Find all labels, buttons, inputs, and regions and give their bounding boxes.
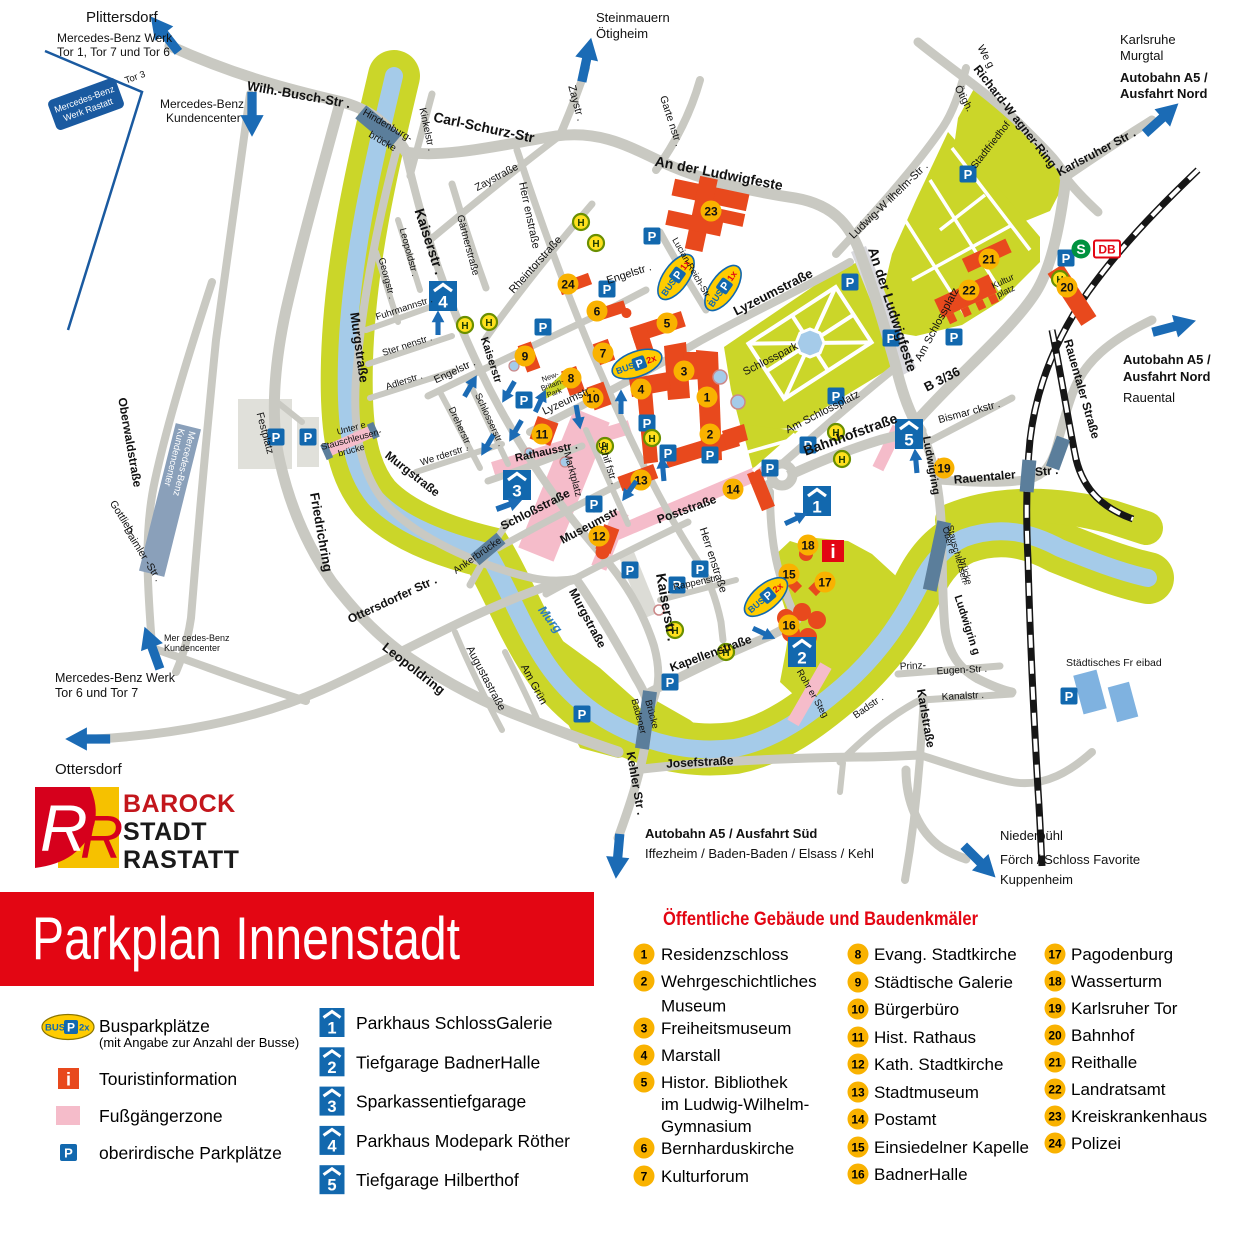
svg-text:Karlsruhe: Karlsruhe	[1120, 32, 1176, 47]
svg-text:Plittersdorf: Plittersdorf	[86, 9, 159, 26]
svg-text:1: 1	[812, 498, 821, 517]
svg-text:9: 9	[522, 350, 529, 364]
svg-text:Kath. Stadtkirche: Kath. Stadtkirche	[874, 1055, 1003, 1074]
svg-text:1: 1	[641, 948, 648, 962]
svg-text:3: 3	[327, 1098, 336, 1116]
svg-text:4: 4	[327, 1137, 337, 1155]
svg-text:Autobahn A5 /: Autobahn A5 /	[1120, 70, 1208, 85]
svg-text:Parkhaus Modepark Röther: Parkhaus Modepark Röther	[356, 1131, 570, 1151]
svg-text:Mer cedes-Benz: Mer cedes-Benz	[164, 633, 230, 643]
svg-text:BadnerHalle: BadnerHalle	[874, 1165, 968, 1184]
svg-text:1: 1	[704, 391, 711, 405]
svg-text:Hist. Rathaus: Hist. Rathaus	[874, 1028, 976, 1047]
svg-text:17: 17	[818, 576, 832, 590]
svg-text:im Ludwig-Wilhelm-: im Ludwig-Wilhelm-	[661, 1095, 809, 1114]
svg-text:Förch / Schloss Favorite: Förch / Schloss Favorite	[1000, 852, 1140, 867]
svg-text:P: P	[1065, 689, 1074, 704]
svg-text:13: 13	[634, 474, 648, 488]
svg-text:Tiefgarage Hilberthof: Tiefgarage Hilberthof	[356, 1170, 519, 1190]
svg-text:P: P	[664, 446, 673, 461]
svg-text:P: P	[1062, 251, 1071, 266]
svg-text:Ausfahrt Nord: Ausfahrt Nord	[1120, 86, 1207, 101]
svg-text:Freiheitsmuseum: Freiheitsmuseum	[661, 1019, 791, 1038]
svg-text:5: 5	[327, 1177, 336, 1195]
svg-text:14: 14	[726, 483, 740, 497]
svg-text:H: H	[577, 218, 584, 229]
svg-text:Evang. Stadtkirche: Evang. Stadtkirche	[874, 945, 1017, 964]
svg-text:R: R	[80, 804, 123, 871]
svg-text:Prinz-: Prinz-	[900, 660, 927, 672]
svg-text:Reithalle: Reithalle	[1071, 1053, 1137, 1072]
svg-text:H: H	[485, 318, 492, 329]
svg-text:Autobahn A5 / Ausfahrt Süd: Autobahn A5 / Ausfahrt Süd	[645, 826, 817, 841]
svg-text:P: P	[539, 320, 548, 335]
svg-text:Landratsamt: Landratsamt	[1071, 1080, 1166, 1099]
svg-text:7: 7	[641, 1170, 648, 1184]
svg-text:Niederbühl: Niederbühl	[1000, 828, 1063, 843]
svg-text:P: P	[964, 167, 973, 182]
svg-text:Mercedes-Benz Werk: Mercedes-Benz Werk	[55, 671, 176, 685]
svg-text:Residenzschloss: Residenzschloss	[661, 945, 789, 964]
svg-text:13: 13	[851, 1086, 865, 1100]
svg-text:5: 5	[641, 1076, 648, 1090]
svg-text:Ausfahrt Nord: Ausfahrt Nord	[1123, 369, 1210, 384]
svg-text:Steinmauern: Steinmauern	[596, 10, 670, 25]
svg-text:Karlsruher Tor: Karlsruher Tor	[1071, 999, 1178, 1018]
svg-text:i: i	[66, 1070, 71, 1090]
svg-text:Pagodenburg: Pagodenburg	[1071, 945, 1173, 964]
svg-text:20: 20	[1048, 1029, 1062, 1043]
svg-text:8: 8	[568, 372, 575, 386]
svg-text:(mit Angabe zur Anzahl der Bus: (mit Angabe zur Anzahl der Busse)	[99, 1035, 299, 1050]
svg-text:22: 22	[1048, 1083, 1062, 1097]
svg-text:Autobahn A5 /: Autobahn A5 /	[1123, 352, 1211, 367]
svg-text:Bürgerbüro: Bürgerbüro	[874, 1000, 959, 1019]
svg-text:16: 16	[782, 619, 796, 633]
svg-text:5: 5	[664, 317, 671, 331]
svg-text:2x: 2x	[79, 1023, 90, 1034]
svg-text:Touristinformation: Touristinformation	[99, 1069, 237, 1089]
svg-text:Busparkplätze: Busparkplätze	[99, 1016, 210, 1036]
svg-text:P: P	[520, 393, 529, 408]
svg-text:22: 22	[962, 284, 976, 298]
svg-text:Murgtal: Murgtal	[1120, 48, 1163, 63]
svg-text:18: 18	[801, 539, 815, 553]
svg-text:Kanalstr .: Kanalstr .	[941, 690, 984, 703]
svg-text:P: P	[846, 275, 855, 290]
svg-text:Kuppenheim: Kuppenheim	[1000, 872, 1073, 887]
svg-text:Kreiskrankenhaus: Kreiskrankenhaus	[1071, 1107, 1207, 1126]
svg-text:P: P	[950, 330, 959, 345]
svg-text:8: 8	[855, 948, 862, 962]
svg-text:2: 2	[707, 428, 714, 442]
svg-text:21: 21	[1048, 1056, 1062, 1070]
svg-text:1: 1	[327, 1020, 336, 1038]
svg-text:Iffezheim / Baden-Baden / Elsa: Iffezheim / Baden-Baden / Elsass / Kehl	[645, 846, 874, 861]
svg-text:15: 15	[851, 1141, 865, 1155]
svg-text:S: S	[1076, 241, 1085, 257]
svg-text:3: 3	[641, 1022, 648, 1036]
svg-text:Tor 1, Tor 7 und Tor 6: Tor 1, Tor 7 und Tor 6	[57, 45, 170, 59]
svg-text:Kulturforum: Kulturforum	[661, 1167, 749, 1186]
svg-text:Histor. Bibliothek: Histor. Bibliothek	[661, 1073, 788, 1092]
svg-text:16: 16	[851, 1168, 865, 1182]
svg-text:6: 6	[641, 1142, 648, 1156]
svg-text:Gymnasium: Gymnasium	[661, 1117, 752, 1136]
svg-text:12: 12	[851, 1058, 865, 1072]
svg-text:4: 4	[641, 1049, 648, 1063]
svg-text:Tiefgarage BadnerHalle: Tiefgarage BadnerHalle	[356, 1052, 540, 1072]
svg-text:P: P	[64, 1146, 73, 1161]
svg-text:H: H	[592, 239, 599, 250]
svg-text:Wehrgeschichtliches: Wehrgeschichtliches	[661, 972, 817, 991]
svg-text:17: 17	[1048, 948, 1062, 962]
svg-text:4: 4	[438, 293, 448, 312]
svg-text:2: 2	[641, 975, 648, 989]
svg-text:oberirdische Parkplätze: oberirdische Parkplätze	[99, 1143, 282, 1163]
svg-text:5: 5	[904, 431, 913, 450]
svg-text:P: P	[67, 1021, 75, 1035]
svg-text:23: 23	[704, 205, 718, 219]
svg-text:Kundencenter: Kundencenter	[164, 643, 220, 653]
svg-text:23: 23	[1048, 1110, 1062, 1124]
svg-text:Rauental: Rauental	[1123, 390, 1175, 405]
svg-text:Marstall: Marstall	[661, 1046, 721, 1065]
svg-text:10: 10	[851, 1003, 865, 1017]
svg-text:Postamt: Postamt	[874, 1110, 937, 1129]
svg-text:Stadtmuseum: Stadtmuseum	[874, 1083, 979, 1102]
svg-text:P: P	[666, 675, 675, 690]
svg-text:6: 6	[594, 305, 601, 319]
svg-text:7: 7	[600, 347, 607, 361]
svg-text:Tor 6 und Tor 7: Tor 6 und Tor 7	[55, 686, 138, 700]
svg-text:Mercedes-Benz: Mercedes-Benz	[160, 97, 244, 111]
svg-text:3: 3	[681, 365, 688, 379]
svg-text:Fußgängerzone: Fußgängerzone	[99, 1106, 223, 1126]
svg-text:21: 21	[982, 253, 996, 267]
svg-text:Städtisches Fr eibad: Städtisches Fr eibad	[1066, 657, 1162, 669]
svg-text:3: 3	[512, 482, 521, 501]
svg-text:2: 2	[327, 1059, 336, 1077]
svg-text:11: 11	[852, 1031, 865, 1045]
svg-text:12: 12	[592, 530, 606, 544]
svg-text:P: P	[766, 461, 775, 476]
svg-text:RASTATT: RASTATT	[123, 846, 239, 874]
svg-text:20: 20	[1060, 281, 1074, 295]
svg-text:H: H	[461, 321, 468, 332]
svg-text:Einsiedelner Kapelle: Einsiedelner Kapelle	[874, 1138, 1029, 1157]
svg-text:P: P	[590, 497, 599, 512]
svg-text:DB: DB	[1098, 243, 1116, 257]
svg-text:P: P	[706, 448, 715, 463]
svg-text:Kundencenter: Kundencenter	[166, 111, 241, 125]
svg-text:Ötigheim: Ötigheim	[596, 26, 648, 41]
svg-text:Museum: Museum	[661, 997, 726, 1016]
svg-text:14: 14	[851, 1113, 865, 1127]
svg-text:18: 18	[1048, 975, 1062, 989]
svg-text:9: 9	[855, 976, 862, 990]
svg-text:Str .: Str .	[1034, 463, 1058, 479]
svg-text:24: 24	[561, 278, 575, 292]
svg-text:Bahnhof: Bahnhof	[1071, 1026, 1135, 1045]
svg-text:Sparkassentiefgarage: Sparkassentiefgarage	[356, 1092, 526, 1112]
svg-text:Parkhaus SchlossGalerie: Parkhaus SchlossGalerie	[356, 1013, 552, 1033]
svg-text:24: 24	[1048, 1137, 1062, 1151]
svg-text:BUS: BUS	[45, 1023, 65, 1034]
svg-text:P: P	[578, 707, 587, 722]
svg-text:19: 19	[1048, 1002, 1062, 1016]
svg-text:Öffentliche Gebäude und Bauden: Öffentliche Gebäude und Baudenkmäler	[663, 909, 979, 930]
svg-text:BAROCK: BAROCK	[123, 790, 236, 818]
svg-text:STADT: STADT	[123, 818, 207, 846]
svg-text:Bernharduskirche: Bernharduskirche	[661, 1139, 794, 1158]
svg-text:H: H	[838, 455, 845, 466]
svg-text:P: P	[648, 229, 657, 244]
svg-text:2: 2	[797, 649, 806, 668]
svg-text:Polizei: Polizei	[1071, 1134, 1121, 1153]
svg-text:Parkplan Innenstadt: Parkplan Innenstadt	[32, 905, 460, 972]
svg-text:i: i	[830, 542, 835, 563]
svg-text:Städtische Galerie: Städtische Galerie	[874, 973, 1013, 992]
svg-text:Ottersdorf: Ottersdorf	[55, 761, 123, 778]
svg-text:P: P	[304, 430, 313, 445]
svg-text:P: P	[626, 563, 635, 578]
svg-text:4: 4	[638, 383, 645, 397]
svg-text:Mercedes-Benz Werk: Mercedes-Benz Werk	[57, 31, 173, 45]
svg-text:H: H	[648, 434, 655, 445]
svg-text:P: P	[643, 416, 652, 431]
svg-text:11: 11	[536, 428, 549, 442]
svg-text:Wasserturm: Wasserturm	[1071, 972, 1162, 991]
